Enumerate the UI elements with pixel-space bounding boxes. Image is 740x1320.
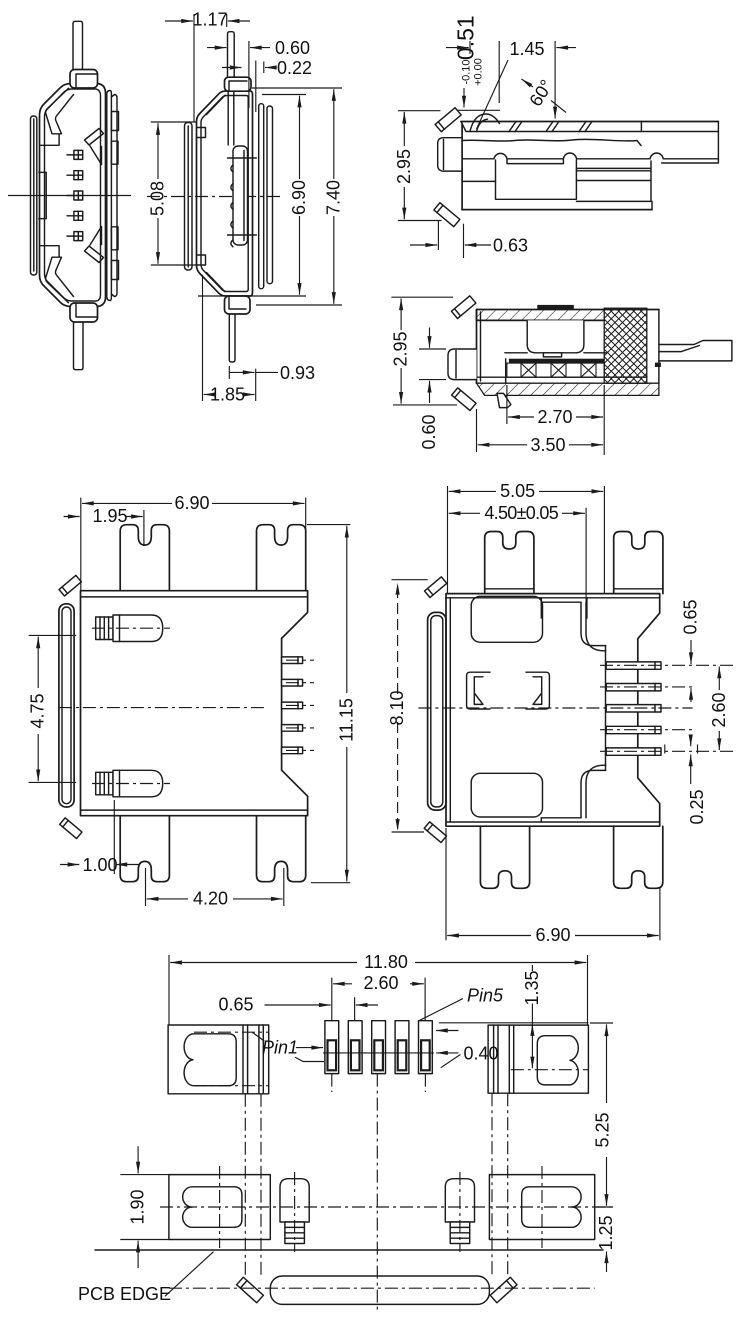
svg-text:5.25: 5.25 — [593, 1112, 613, 1147]
svg-text:Pin5: Pin5 — [467, 986, 504, 1006]
svg-text:4.20: 4.20 — [193, 888, 228, 908]
svg-text:0.51: 0.51 — [453, 15, 479, 60]
svg-text:6.90: 6.90 — [174, 493, 209, 513]
svg-text:0.65: 0.65 — [681, 599, 701, 634]
svg-text:1.45: 1.45 — [509, 39, 544, 59]
svg-text:0.40: 0.40 — [463, 1043, 498, 1063]
svg-text:2.60: 2.60 — [709, 692, 729, 727]
svg-text:Pin1: Pin1 — [262, 1038, 298, 1058]
svg-text:1.95: 1.95 — [92, 506, 127, 526]
svg-text:0.63: 0.63 — [493, 236, 528, 256]
svg-text:PCB EDGE: PCB EDGE — [78, 1284, 171, 1304]
svg-text:0.93: 0.93 — [280, 363, 315, 383]
svg-text:7.40: 7.40 — [323, 180, 343, 215]
svg-text:0.60: 0.60 — [275, 38, 310, 58]
svg-text:2.95: 2.95 — [391, 331, 411, 366]
svg-text:1.85: 1.85 — [210, 385, 245, 405]
svg-text:5.08: 5.08 — [148, 181, 168, 216]
svg-text:+0.00: +0.00 — [473, 58, 485, 86]
svg-text:2.60: 2.60 — [363, 973, 398, 993]
svg-text:6.90: 6.90 — [289, 180, 309, 215]
svg-text:1.25: 1.25 — [596, 1215, 616, 1250]
svg-text:1.00: 1.00 — [82, 855, 117, 875]
svg-text:0.65: 0.65 — [218, 994, 253, 1014]
svg-text:0.25: 0.25 — [687, 789, 707, 824]
svg-text:5.05: 5.05 — [500, 481, 535, 501]
svg-text:1.17: 1.17 — [192, 10, 227, 30]
svg-text:2.95: 2.95 — [394, 149, 414, 184]
svg-text:-0.10: -0.10 — [461, 59, 473, 84]
svg-text:0.22: 0.22 — [277, 58, 312, 78]
svg-text:6.90: 6.90 — [535, 925, 570, 945]
svg-text:4.50±0.05: 4.50±0.05 — [484, 503, 558, 523]
svg-text:1.90: 1.90 — [128, 1189, 148, 1224]
svg-text:8.10: 8.10 — [387, 690, 407, 725]
svg-text:11.80: 11.80 — [364, 952, 408, 972]
svg-text:4.75: 4.75 — [28, 693, 48, 728]
svg-text:3.50: 3.50 — [530, 435, 565, 455]
svg-text:0.60: 0.60 — [419, 414, 439, 449]
svg-text:11.15: 11.15 — [336, 698, 356, 742]
svg-text:1.35: 1.35 — [522, 970, 542, 1005]
svg-text:2.70: 2.70 — [537, 407, 572, 427]
